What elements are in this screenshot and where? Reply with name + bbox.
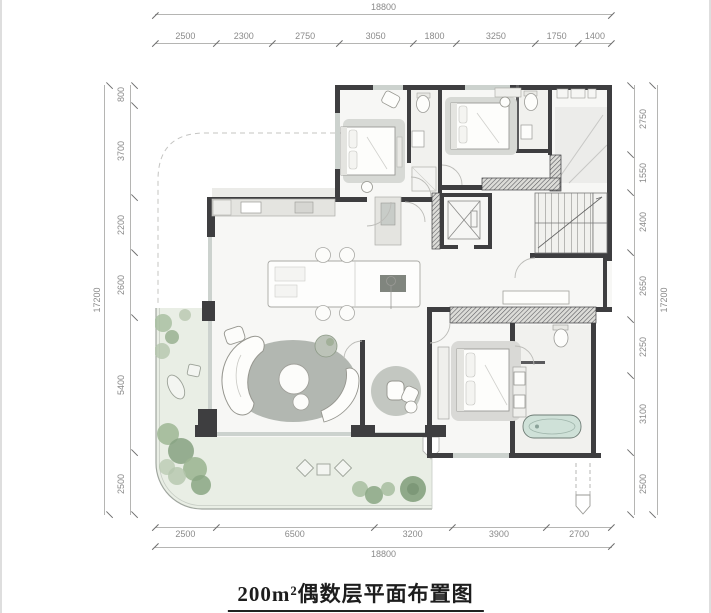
- dimension-left-total: 17200: [90, 85, 105, 515]
- dimension-value: 3250: [456, 28, 535, 44]
- dimension-value: 1400: [578, 28, 612, 44]
- closet-unit: [557, 89, 568, 98]
- bedroom-b: [445, 88, 521, 155]
- dimension-top-total: 18800: [155, 0, 612, 15]
- dimension-value: 1550: [634, 154, 652, 193]
- placemat: [380, 275, 406, 292]
- pillow: [349, 130, 357, 148]
- dimension-line: [155, 14, 612, 15]
- indoor-plant: [315, 335, 337, 357]
- dimension-value: 3100: [634, 375, 652, 452]
- dimension-value: 2500: [634, 452, 652, 515]
- desk-chair: [500, 97, 510, 107]
- dimension-tick: [152, 12, 159, 19]
- pillow: [459, 126, 467, 143]
- dimension-value: 6500: [216, 527, 374, 543]
- toilet: [417, 96, 430, 113]
- dimension-value: 800: [113, 85, 131, 105]
- floor-plan-sheet: 18800 2500 2300 2750 3050 1800 3250 1750…: [0, 0, 711, 613]
- master-bed: [457, 349, 509, 411]
- dimension-value: 2300: [216, 28, 272, 44]
- dimension-value: 2750: [634, 85, 652, 154]
- dimension-value: 17200: [93, 287, 102, 312]
- bathtub: [523, 415, 581, 438]
- side-table: [405, 401, 417, 413]
- fridge: [213, 200, 231, 215]
- dimension-bottom-total: 18800: [155, 547, 612, 562]
- sink: [514, 395, 525, 408]
- floor-plan-drawing: [155, 85, 612, 515]
- dimension-tick: [106, 82, 113, 89]
- dimension-right-segments: 2750 1550 2400 2650 2250 3100 2500: [634, 85, 652, 515]
- dimension-value: 3700: [113, 105, 131, 198]
- dimension-value: 2600: [113, 252, 131, 317]
- dimension-value: 2200: [113, 197, 131, 252]
- pillow: [466, 353, 475, 377]
- dimension-value: 1750: [535, 28, 578, 44]
- dimension-value: 1800: [413, 28, 457, 44]
- dimension-tick: [608, 12, 615, 19]
- elevator: [448, 201, 480, 239]
- closet-unit: [571, 89, 585, 98]
- coffee-table: [279, 364, 309, 394]
- pillow: [459, 106, 467, 123]
- dimension-value: 17200: [660, 287, 669, 312]
- dimension-value: 18800: [155, 3, 612, 12]
- dimension-value: 3900: [452, 527, 547, 543]
- dimension-value: 2500: [155, 527, 216, 543]
- sink: [514, 372, 525, 385]
- dimension-value: 2750: [272, 28, 339, 44]
- dimension-value: 18800: [155, 550, 612, 559]
- stool: [362, 182, 373, 193]
- entry-lobby-area: [555, 107, 607, 183]
- study-nook: [371, 366, 421, 416]
- dimension-value: 2500: [113, 452, 131, 515]
- dimension-value: 2700: [546, 527, 612, 543]
- toilet: [525, 94, 538, 111]
- staircase: [535, 193, 607, 253]
- toilet: [554, 329, 568, 347]
- pillow: [466, 381, 475, 405]
- dimension-right-total: 17200: [657, 85, 672, 515]
- dimension-value: 5400: [113, 317, 131, 452]
- sink: [521, 125, 532, 139]
- dimension-value: 3200: [374, 527, 452, 543]
- console-table: [503, 291, 569, 304]
- dimension-tick: [106, 511, 113, 518]
- dresser: [438, 347, 449, 419]
- dimension-value: 2250: [634, 319, 652, 375]
- dimension-value: 2400: [634, 192, 652, 252]
- dimension-line: [104, 85, 105, 515]
- kitchen-sink: [241, 202, 261, 213]
- desk: [495, 88, 521, 97]
- section-arrow: [576, 463, 590, 514]
- cooktop: [295, 202, 313, 213]
- outdoor-chair: [187, 364, 201, 377]
- closet-unit: [588, 89, 596, 98]
- dimension-line: [657, 85, 658, 515]
- sheet-edge-left: [0, 0, 2, 613]
- upper-cabinet: [212, 188, 335, 197]
- drawing-title: 200m²偶数层平面布置图: [227, 578, 483, 612]
- dimension-bottom-segments: 2500 6500 3200 3900 2700: [155, 527, 612, 543]
- pillow: [349, 151, 357, 169]
- dimension-left-segments: 800 3700 2200 2600 5400 2500: [113, 85, 131, 515]
- dining-chair: [316, 248, 331, 263]
- bench: [397, 137, 402, 167]
- side-table: [293, 394, 309, 410]
- sink: [412, 131, 424, 147]
- dimension-value: 2500: [155, 28, 216, 44]
- dining-chair: [340, 248, 355, 263]
- dining-chair: [340, 306, 355, 321]
- dining-chair: [316, 306, 331, 321]
- dimension-value: 2650: [634, 252, 652, 318]
- deck-table: [317, 464, 330, 475]
- dimension-value: 3050: [339, 28, 413, 44]
- dimension-line: [155, 547, 612, 548]
- dimension-top-segments: 2500 2300 2750 3050 1800 3250 1750 1400: [155, 28, 612, 44]
